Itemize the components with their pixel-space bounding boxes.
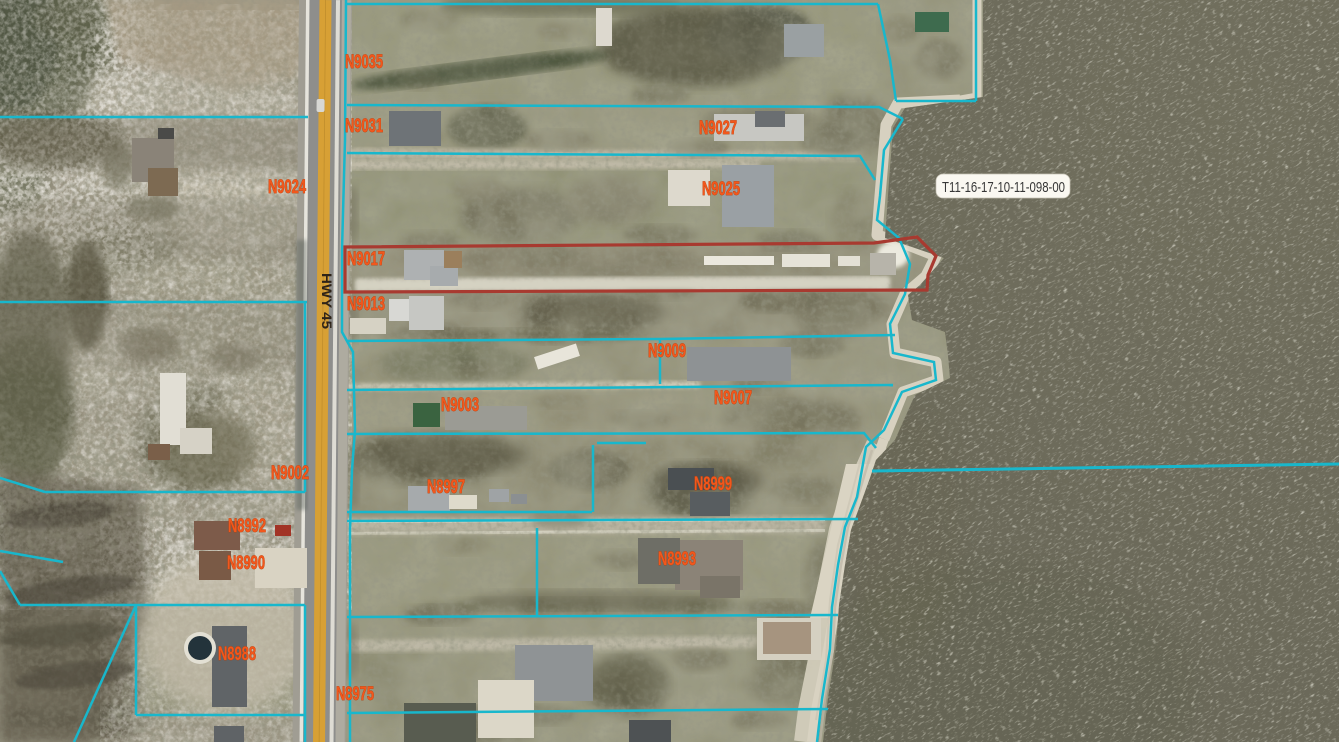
svg-text:N9003: N9003 [441,395,479,416]
svg-text:N9007: N9007 [714,388,752,409]
svg-text:N8993: N8993 [658,549,696,570]
svg-text:N8997: N8997 [427,477,465,498]
svg-text:N9025: N9025 [702,179,740,200]
svg-text:N9035: N9035 [345,52,383,73]
svg-text:N9009: N9009 [648,341,686,362]
svg-text:N8999: N8999 [694,474,732,495]
svg-text:N8988: N8988 [218,644,256,665]
svg-text:N8992: N8992 [228,516,266,537]
svg-text:N9031: N9031 [345,116,383,137]
svg-text:N8990: N8990 [227,553,265,574]
svg-text:N8975: N8975 [336,684,374,705]
svg-text:T11-16-17-10-11-098-00: T11-16-17-10-11-098-00 [942,179,1065,196]
svg-text:N9013: N9013 [347,294,385,315]
svg-text:N9024: N9024 [268,177,306,198]
svg-text:N9017: N9017 [347,249,385,270]
svg-text:HWY 45: HWY 45 [319,273,335,329]
svg-text:N9027: N9027 [699,118,737,139]
svg-text:N9002: N9002 [271,463,309,484]
